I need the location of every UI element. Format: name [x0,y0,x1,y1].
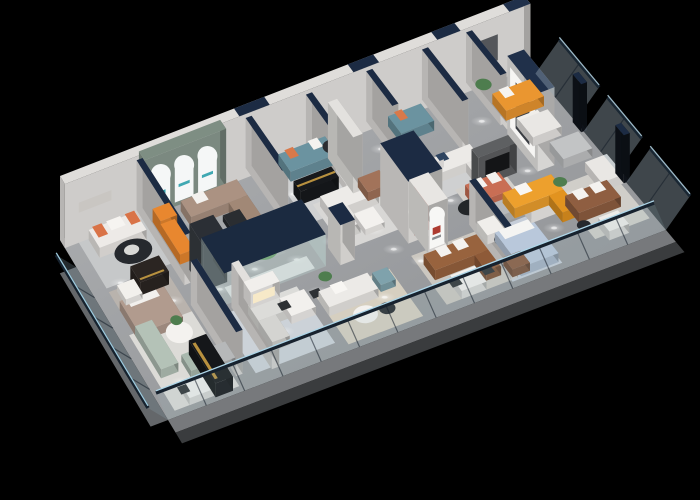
showroom-render [0,0,700,500]
floor-spotlight [479,120,485,123]
floor-spotlight [382,296,388,299]
floor-spotlight [525,170,531,173]
screenshot-root: 3D isometric cutaway render of a furnitu… [0,0,700,500]
sign-arch-niche [429,207,445,223]
display-arch-niche [174,155,194,175]
showroom-3d-floorplan [0,0,700,500]
floor-spotlight [448,199,454,202]
floor-spotlight [418,260,424,263]
floor-spotlight [391,248,397,251]
floor-spotlight [551,227,557,230]
display-arch-niche [197,146,217,166]
back-perimeter-wall [60,176,65,248]
